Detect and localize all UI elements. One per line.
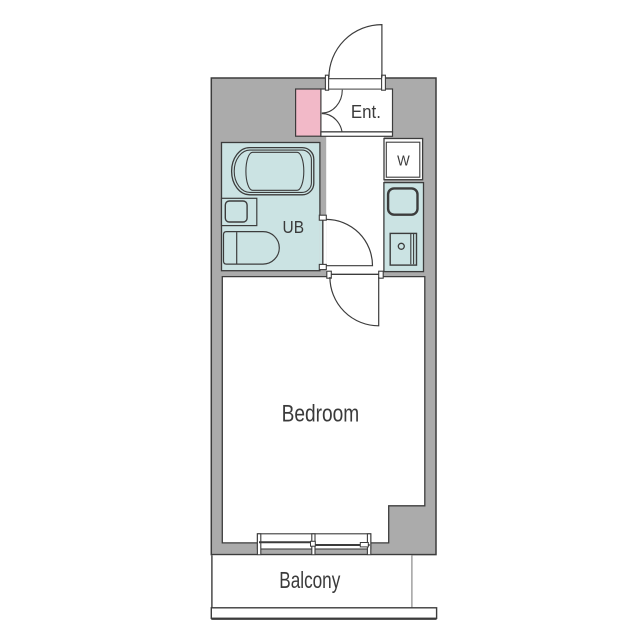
svg-text:Balcony: Balcony [279,567,340,593]
svg-text:W: W [397,153,410,169]
svg-text:Bedroom: Bedroom [282,400,360,427]
svg-text:Ent.: Ent. [351,102,381,122]
svg-text:UB: UB [283,217,305,237]
